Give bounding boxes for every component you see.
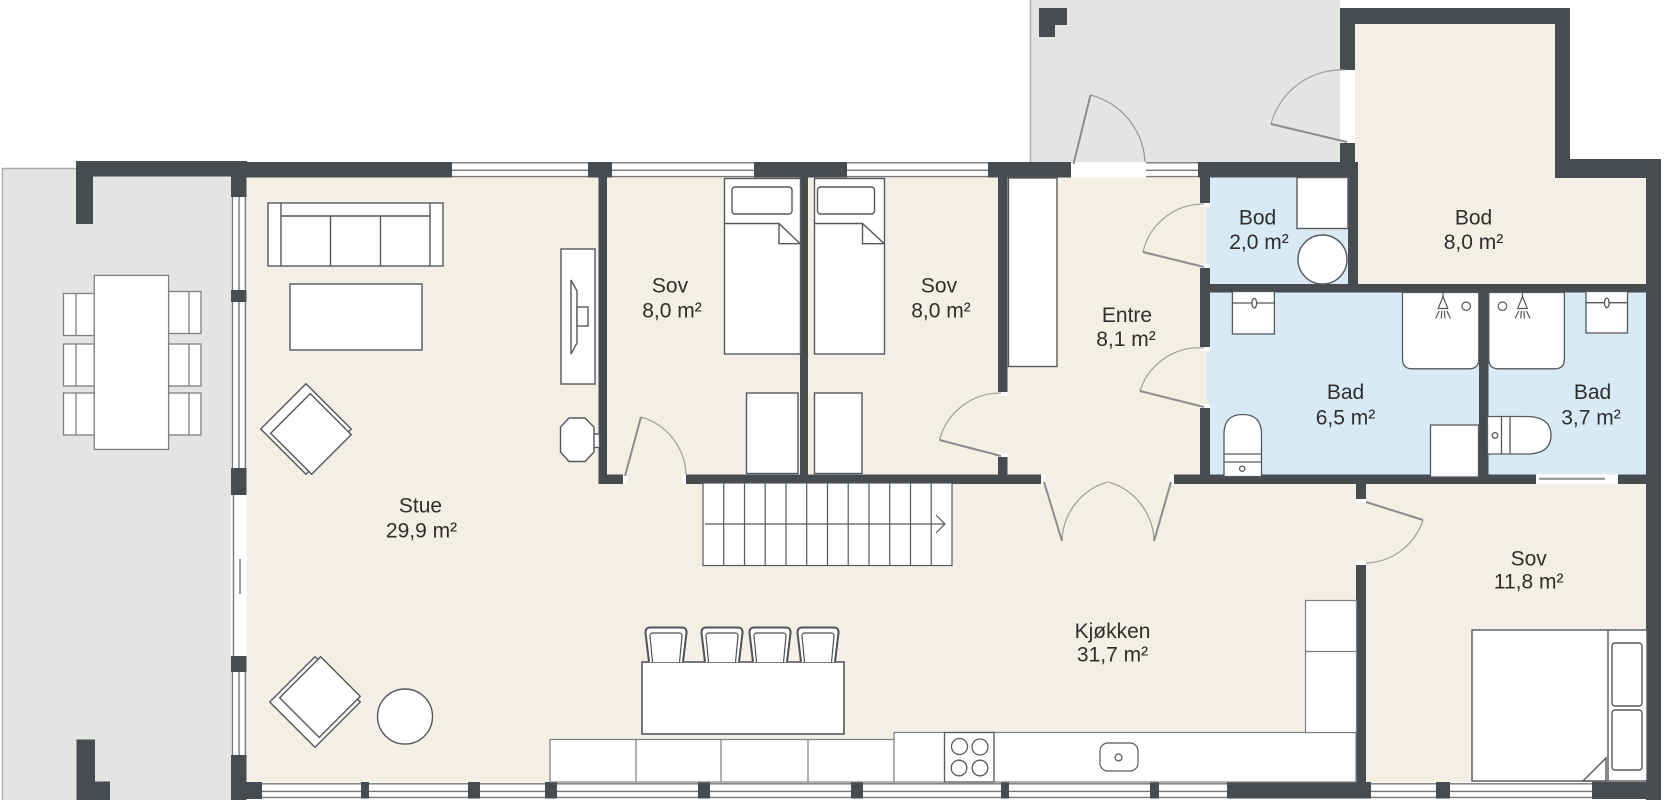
svg-text:6,5 m²: 6,5 m² <box>1316 407 1376 430</box>
svg-text:8,0 m²: 8,0 m² <box>642 300 702 323</box>
svg-text:Stue: Stue <box>399 495 442 518</box>
svg-text:8,0 m²: 8,0 m² <box>911 300 971 323</box>
svg-text:Bad: Bad <box>1327 381 1364 404</box>
svg-text:Kjøkken: Kjøkken <box>1075 620 1151 643</box>
svg-text:Entre: Entre <box>1102 304 1152 327</box>
svg-text:2,0 m²: 2,0 m² <box>1229 231 1289 254</box>
svg-text:Sov: Sov <box>921 275 958 298</box>
svg-text:Bod: Bod <box>1455 207 1492 230</box>
svg-text:Bad: Bad <box>1574 381 1611 404</box>
svg-text:31,7 m²: 31,7 m² <box>1077 644 1148 667</box>
svg-text:Bod: Bod <box>1239 207 1276 230</box>
svg-text:Sov: Sov <box>1511 548 1548 571</box>
svg-text:Sov: Sov <box>652 275 689 298</box>
svg-text:3,7 m²: 3,7 m² <box>1561 407 1621 430</box>
svg-text:8,1 m²: 8,1 m² <box>1096 328 1156 351</box>
svg-text:8,0 m²: 8,0 m² <box>1444 231 1504 254</box>
svg-text:29,9 m²: 29,9 m² <box>386 520 457 543</box>
svg-text:11,8 m²: 11,8 m² <box>1494 571 1564 594</box>
